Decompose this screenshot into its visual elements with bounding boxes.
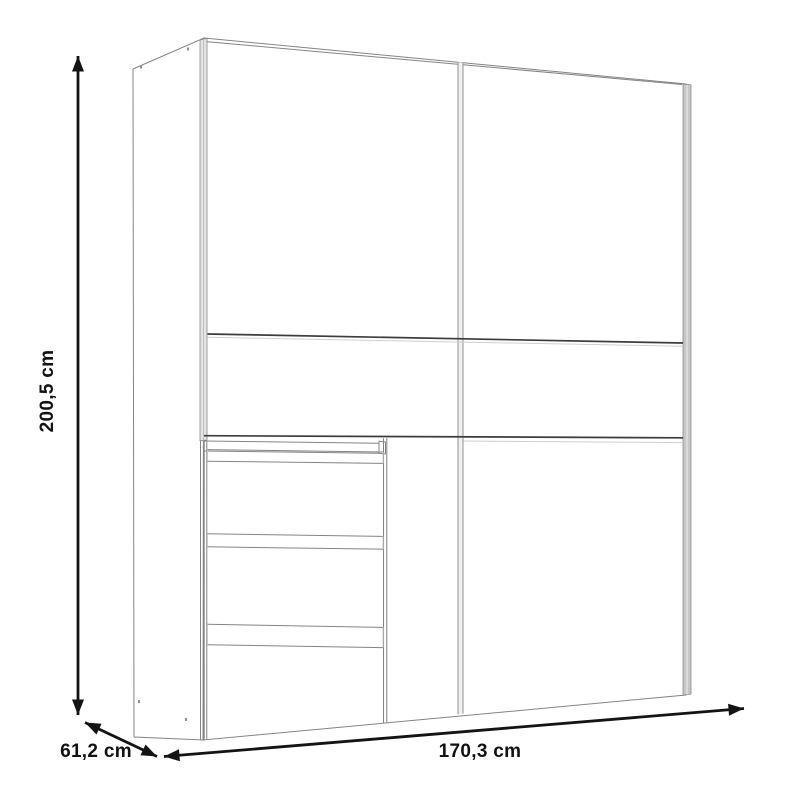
- door-divider: [458, 62, 464, 714]
- drawer-2-handle-groove: [207, 534, 384, 549]
- right-door-edge-profile: [683, 84, 691, 695]
- side-panel: [133, 38, 204, 740]
- wardrobe-drawing: [133, 38, 691, 740]
- front-face: [203, 38, 686, 740]
- wardrobe-diagram-canvas: 200,5 cm 61,2 cm 170,3 cm: [0, 0, 800, 800]
- screw-mark: [138, 700, 140, 703]
- depth-dimension-label: 61,2 cm: [60, 741, 132, 762]
- door-grooves: [204, 334, 683, 443]
- drawer-3-handle-groove: [207, 624, 384, 647]
- product-dimension-diagram: 200,5 cm 61,2 cm 170,3 cm: [0, 0, 800, 800]
- screw-mark: [140, 66, 142, 69]
- height-dimension-label: 200,5 cm: [37, 350, 58, 433]
- dimension-annotations: 200,5 cm 61,2 cm 170,3 cm: [37, 56, 744, 762]
- screw-mark: [187, 48, 189, 51]
- screw-mark: [185, 718, 187, 721]
- width-dimension-label: 170,3 cm: [439, 741, 522, 762]
- drawer-unit: [204, 438, 387, 739]
- height-dimension: 200,5 cm: [37, 56, 78, 715]
- depth-dimension: 61,2 cm: [60, 723, 157, 763]
- left-door-edge-profile: [200, 38, 207, 441]
